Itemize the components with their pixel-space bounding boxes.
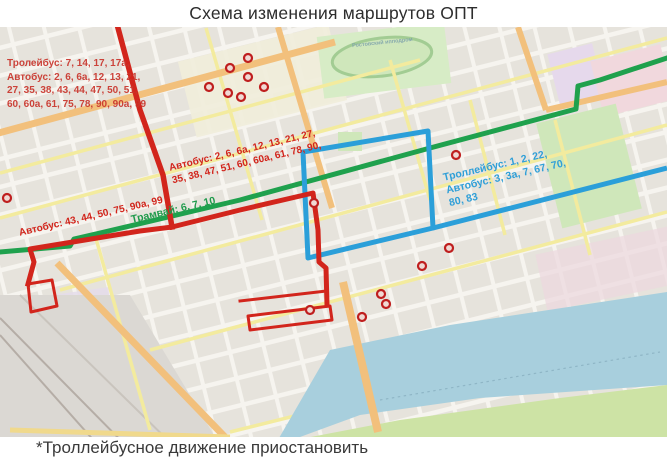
route-change-scheme-page: Схема изменения маршрутов ОПТ (0, 0, 667, 475)
city-map: Ростовский ипподром Тролейбус: 7, 14, 17… (0, 27, 667, 437)
label-line: 60, 60а, 61, 75, 78, 90, 90а, 99 (7, 98, 146, 112)
label-line: Тролейбус: 7, 14, 17, 17а, (7, 57, 146, 71)
page-title: Схема изменения маршрутов ОПТ (0, 3, 667, 24)
label-line: 27, 35, 38, 43, 44, 47, 50, 51, (7, 84, 146, 98)
label-line: Автобус: 2, 6, 6а, 12, 13, 21, (7, 71, 146, 85)
footnote-trolleybus-suspended: *Троллейбусное движение приостановить (36, 438, 368, 458)
label-red-routes-topleft: Тролейбус: 7, 14, 17, 17а, Автобус: 2, 6… (7, 57, 146, 111)
